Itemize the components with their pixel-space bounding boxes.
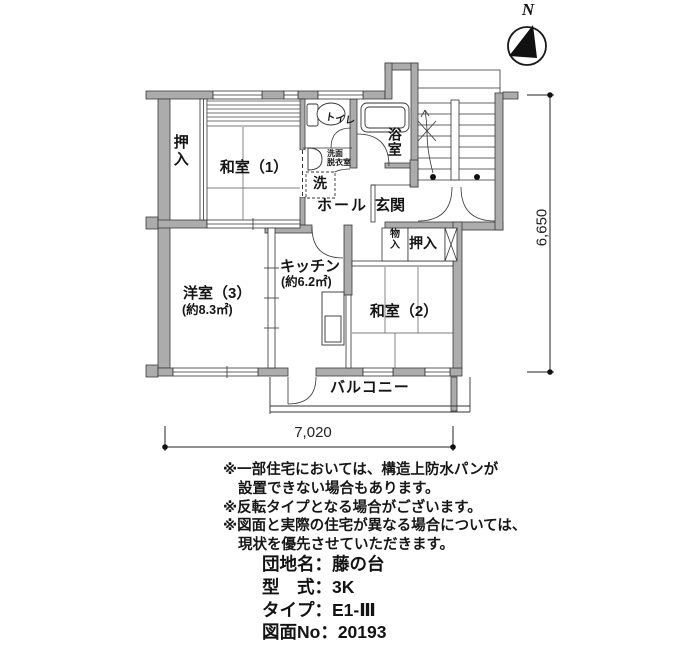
room-label-washitsu2: 和室（2） [356, 304, 452, 320]
room-label-kitchen: キッチン [280, 259, 340, 275]
info-value: 3K [332, 577, 354, 597]
info-value: E1-Ⅲ [332, 600, 376, 620]
room-label-bath: 浴室 [387, 127, 402, 157]
kitchen-sink [325, 316, 341, 342]
bath-door-arc [357, 134, 389, 166]
room-label-oshiire-left: 押入 [172, 134, 188, 168]
note-line: ※一部住宅においては、構造上防水パンが [223, 461, 543, 480]
room-label-washroom: 洗面 脱衣室 [327, 149, 351, 167]
info-label: タイプ： [262, 600, 332, 620]
toilet-tank [307, 104, 318, 126]
closet-hatch [207, 101, 300, 126]
room-label-laundry: 洗 [313, 176, 327, 191]
property-info-line: 型 式：3K [262, 576, 387, 599]
staircase [418, 70, 500, 180]
bathtub-inner [365, 107, 405, 128]
stair-up-arrow [425, 110, 433, 173]
floor-plan-page: N 押入 和室（1） トイレ 洗面 脱衣室 洗 浴室 ホール 玄関 物 入 押入… [0, 0, 700, 650]
room-label-genkan: 玄関 [375, 198, 405, 214]
dimension-height-label: 6,650 [534, 198, 551, 258]
room-label-kitchen-area: (約6.2㎡) [281, 276, 332, 289]
room-label-balcony: バルコニー [330, 380, 410, 396]
toilet-door-arc [331, 128, 351, 148]
room-label-youshitsu3-area: (約8.3㎡) [182, 304, 233, 317]
stair-handrail [451, 100, 459, 180]
room-label-oshiire-right: 押入 [409, 236, 437, 251]
compass [508, 25, 546, 65]
note-line: ※図面と実際の住宅が異なる場合については、 [223, 517, 543, 536]
compass-north-label: N [514, 0, 542, 20]
note-line: ※反転タイプとなる場合がございます。 [223, 499, 543, 518]
room-label-washitsu1: 和室（1） [206, 160, 302, 176]
wash-basin [308, 148, 322, 170]
info-value: 20193 [338, 622, 387, 642]
info-label: 型 式： [262, 577, 332, 597]
notes-block: ※一部住宅においては、構造上防水パンが 設置できない場合もあります。 ※反転タイ… [223, 461, 543, 555]
room-label-mono-ire: 物 入 [384, 230, 406, 251]
property-info-line: タイプ：E1-Ⅲ [262, 599, 387, 622]
info-label: 図面No： [262, 622, 338, 642]
room-label-hall: ホール [317, 198, 368, 214]
note-line: 設置できない場合もあります。 [223, 480, 543, 499]
property-info-line: 図面No：20193 [262, 621, 387, 644]
property-info-line: 団地名：藤の台 [262, 553, 387, 576]
info-label: 団地名： [262, 554, 332, 574]
dimension-width-label: 7,020 [283, 424, 343, 441]
info-value: 藤の台 [332, 554, 385, 574]
room-label-youshitsu3: 洋室（3） [183, 286, 251, 302]
entry-door-arc [418, 187, 452, 221]
kitchen-door-arc [312, 227, 343, 258]
balcony-door-arc [288, 377, 316, 404]
property-info-block: 団地名：藤の台 型 式：3K タイプ：E1-Ⅲ 図面No：20193 [262, 553, 387, 644]
neighbor-door-arc [461, 187, 495, 221]
